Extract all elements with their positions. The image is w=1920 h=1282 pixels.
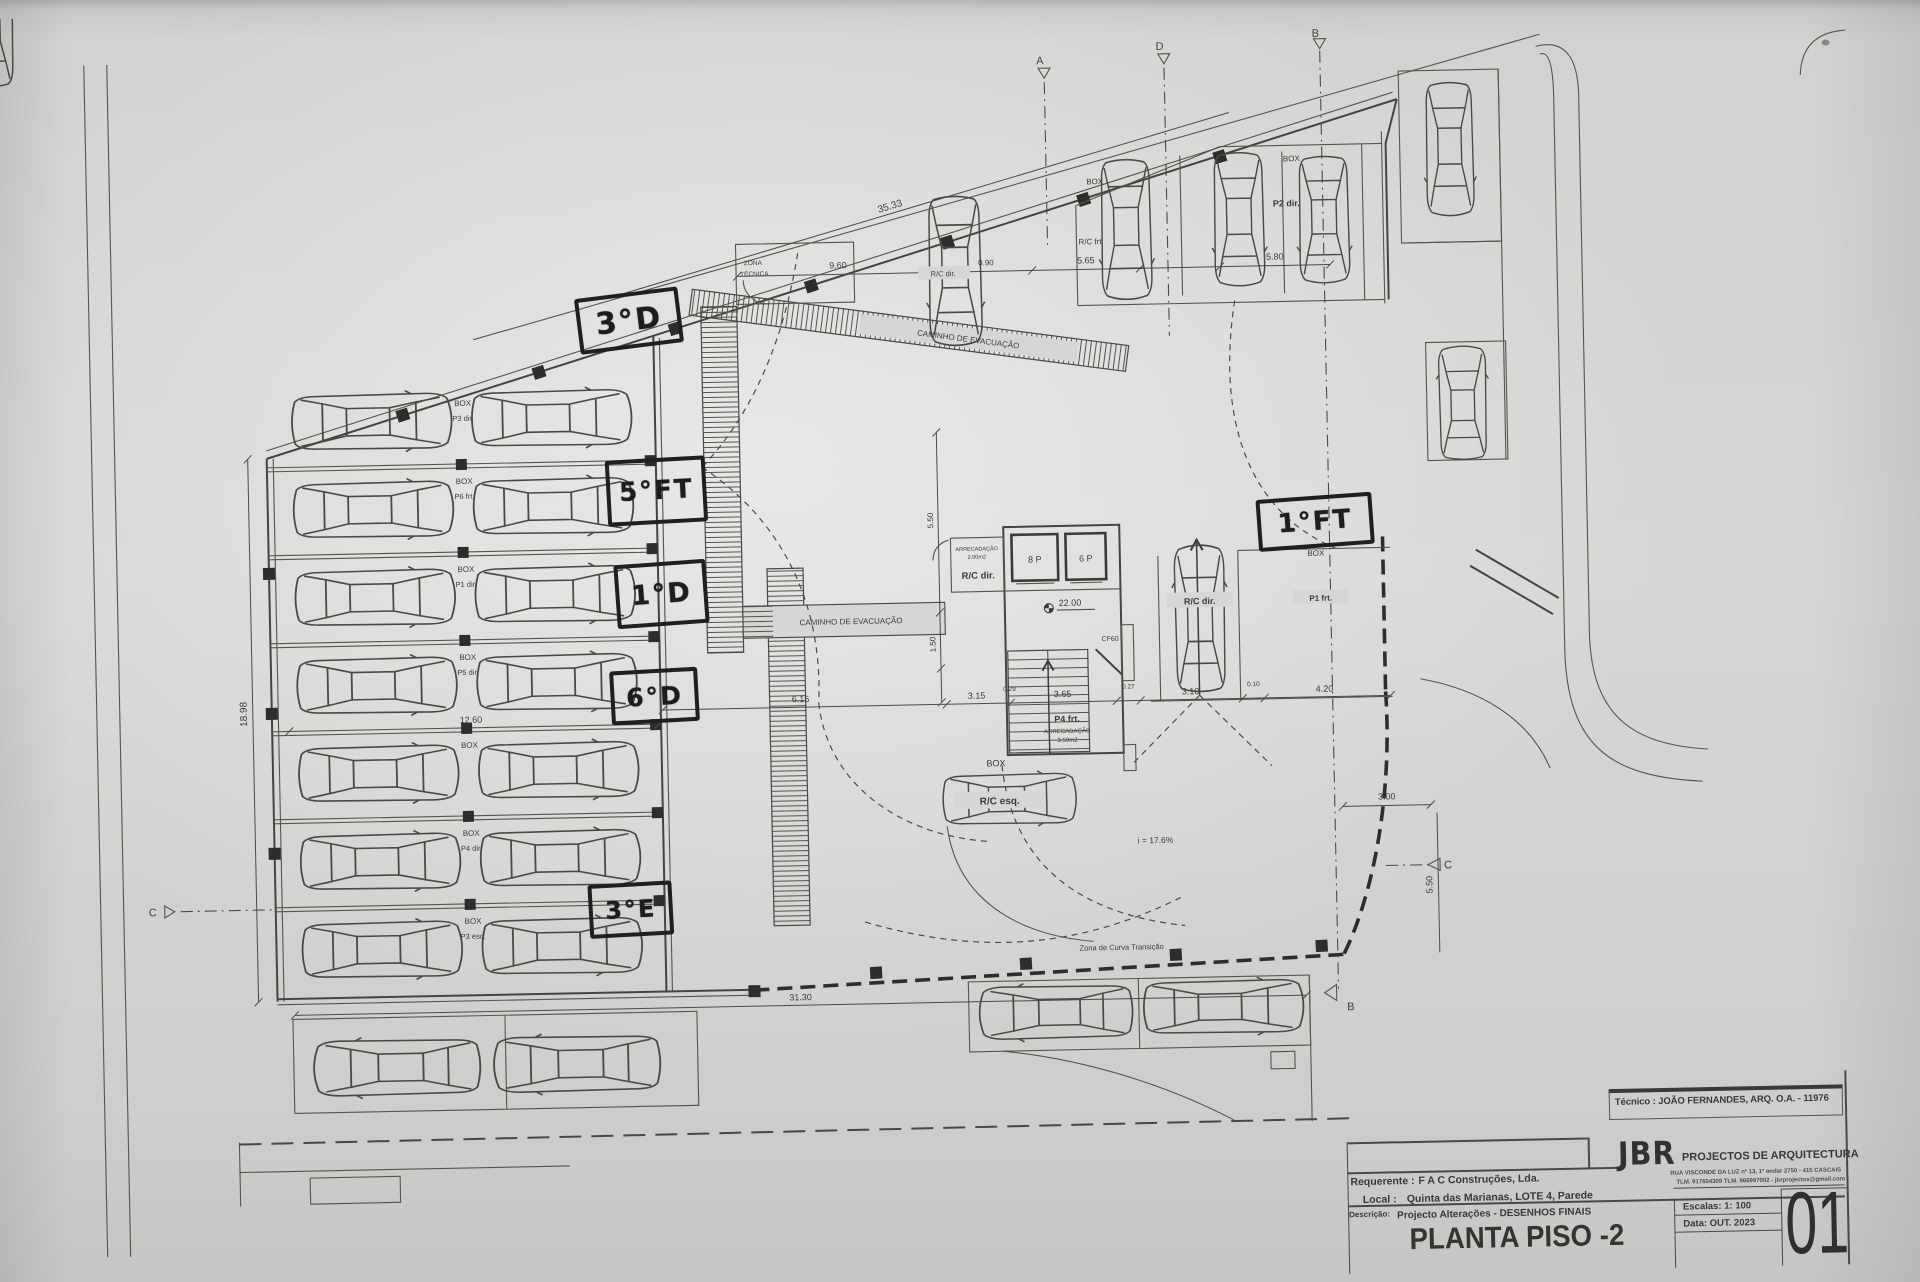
plan-labels: BOX P3 dir. BOX P6 frt. BOX P1 dir. BOX … <box>228 152 1437 1014</box>
box-label: BOX <box>1086 177 1104 186</box>
sheet-number: 01 <box>1784 1178 1849 1267</box>
dim: 3.10 <box>1182 686 1200 696</box>
drawing-content: CAMINHO DE EVACUAÇÃO CAMINHO DE EVACUAÇÃ… <box>0 0 1920 1282</box>
ramp-arrow <box>1128 540 1273 769</box>
requerente-value: F A C Construções, Lda. <box>1418 1172 1539 1186</box>
car-topview <box>297 654 458 718</box>
ramp-slope-label: i = 17.6% <box>1138 835 1174 846</box>
section-marker-c-right: C <box>1444 859 1452 871</box>
car-topview <box>478 738 639 802</box>
stall-tag: P3 dir. <box>452 414 473 423</box>
stall-box-label: BOX <box>459 653 477 662</box>
stall-box-label: BOX <box>457 565 475 574</box>
storage-label: ARRECADAÇÃO <box>1044 727 1091 735</box>
dim: 5.50 <box>926 512 935 528</box>
dim: 12.60 <box>460 715 483 725</box>
handwritten-annotation: 3°E <box>587 880 674 939</box>
stall-box-label: BOX <box>454 399 472 408</box>
car-topview <box>298 742 459 806</box>
stall-box-label: BOX <box>456 477 474 486</box>
dimensions <box>237 109 1441 1021</box>
door-label: CF60 <box>1101 636 1118 643</box>
escala-text: Escalas: 1: 100 <box>1683 1200 1751 1212</box>
local-label: Local : <box>1363 1193 1397 1206</box>
sheet-title: PLANTA PISO -2 <box>1409 1219 1624 1257</box>
stall-box-label: BOX <box>463 829 481 838</box>
dim: 3.00 <box>1378 791 1396 801</box>
box-label: BOX <box>1283 154 1301 163</box>
dim: 5.80 <box>1266 251 1284 261</box>
car-topview <box>1436 346 1490 460</box>
street-right <box>1398 42 1709 787</box>
firm-logo: JBR <box>1618 1134 1676 1173</box>
handwritten-annotation: 1°FT <box>1255 492 1374 552</box>
annotation-text: 3°D <box>594 299 665 342</box>
dim: 0.27 <box>1122 683 1135 690</box>
stall-tag: P4 dir. <box>461 844 482 853</box>
handwritten-annotation: 6°D <box>609 667 700 726</box>
evacuation-band: CAMINHO DE EVACUAÇÃO <box>689 289 1129 371</box>
unit-label: P1 frt. <box>1309 594 1332 603</box>
dim: 9.60 <box>829 260 847 270</box>
section-marker-b-bottom: B <box>1347 1001 1355 1013</box>
stall-tag: P3 esq. <box>461 932 487 942</box>
car-topview <box>1171 545 1229 692</box>
dim: 18.98 <box>239 701 251 727</box>
dim: 3.65 <box>1054 689 1072 699</box>
scanned-floor-plan-photo: CAMINHO DE EVACUAÇÃO CAMINHO DE EVACUAÇÃ… <box>0 0 1920 1282</box>
annotation-text: 1°FT <box>1277 504 1354 539</box>
handwritten-annotation: 5°FT <box>605 455 708 526</box>
stall-tag: P1 dir. <box>456 580 477 589</box>
section-marker-b: B <box>1312 28 1320 40</box>
annotation-text: 3°E <box>605 894 658 925</box>
section-marker-d: D <box>1156 41 1164 53</box>
dim: 1.50 <box>928 636 937 652</box>
car-topview <box>1097 159 1155 300</box>
stall-box-label: BOX <box>464 917 482 926</box>
elevator-label: 6 P <box>1079 553 1093 563</box>
zona-tecnica-label: TÉCNICA <box>740 269 769 279</box>
dim: 0.29 <box>1003 686 1016 693</box>
section-marker-a: A <box>1036 55 1044 67</box>
car-topview <box>471 386 632 450</box>
descricao-label: Descrição: <box>1349 1209 1390 1219</box>
car-topview <box>480 826 641 890</box>
technical-zone: ZONA TÉCNICA <box>735 242 854 304</box>
cars <box>0 0 1502 1106</box>
stall-tag: P5 dir. <box>457 668 478 677</box>
annotation-text: 1°D <box>630 576 693 611</box>
storage-area: 3.50m2 <box>1057 738 1078 744</box>
stall-box-label: BOX <box>461 741 479 750</box>
elevator-label: 8 P <box>1028 554 1042 564</box>
car-topview <box>1143 976 1304 1037</box>
car-topview <box>1422 82 1477 216</box>
unit-label: R/C frt <box>1078 237 1102 246</box>
data-text: Data: OUT. 2023 <box>1683 1217 1755 1229</box>
box-label: BOX <box>986 758 1005 768</box>
dim: 31.30 <box>789 992 812 1002</box>
car-topview <box>302 918 463 982</box>
car-topview <box>313 1035 480 1099</box>
storage-area: 2.00m2 <box>968 554 986 560</box>
car-topview <box>293 478 454 542</box>
zona-tecnica-label: ZONA <box>744 260 763 267</box>
evacuation-corridor: CAMINHO DE EVACUAÇÃO <box>743 602 946 638</box>
dim: 3.15 <box>968 690 986 700</box>
box-label: BOX <box>1307 549 1325 558</box>
dim: 4.20 <box>1316 684 1334 694</box>
car-topview <box>300 830 461 894</box>
car-topview <box>295 566 456 630</box>
dim: 0.90 <box>978 258 994 267</box>
car-topview <box>493 1032 660 1096</box>
annotation-text: 5°FT <box>618 474 694 508</box>
unit-label: P4 frt. <box>1054 714 1080 725</box>
requerente-label: Requerente : <box>1350 1175 1414 1188</box>
unit-label: R/C dir. <box>961 570 994 582</box>
storage-label: ARRECADAÇÃO <box>955 545 998 553</box>
dim: 5.50 <box>1424 876 1434 894</box>
dim: 5.65 <box>1077 255 1095 265</box>
car-topview <box>475 562 636 626</box>
car-topview <box>979 982 1133 1043</box>
section-marker-c-left: C <box>149 907 157 919</box>
handwritten-annotation: 1°D <box>613 559 709 629</box>
dim: 6.15 <box>792 694 810 704</box>
unit-label: R/C dir. <box>931 269 956 279</box>
level-value: 22.00 <box>1059 598 1082 608</box>
stall-tag: P6 frt. <box>454 492 474 501</box>
core-block <box>932 519 1394 774</box>
annotation-text: 6°D <box>625 680 683 712</box>
dim: 35.33 <box>877 198 905 216</box>
unit-label: P2 dir. <box>1273 198 1300 209</box>
unit-label: R/C esq. <box>980 796 1020 808</box>
unit-label: R/C dir. <box>1184 596 1216 607</box>
curve-zone-label: Zona de Curva Transição <box>1079 942 1163 953</box>
dim: 0.10 <box>1247 681 1260 688</box>
bottom-parking <box>236 974 1358 1206</box>
